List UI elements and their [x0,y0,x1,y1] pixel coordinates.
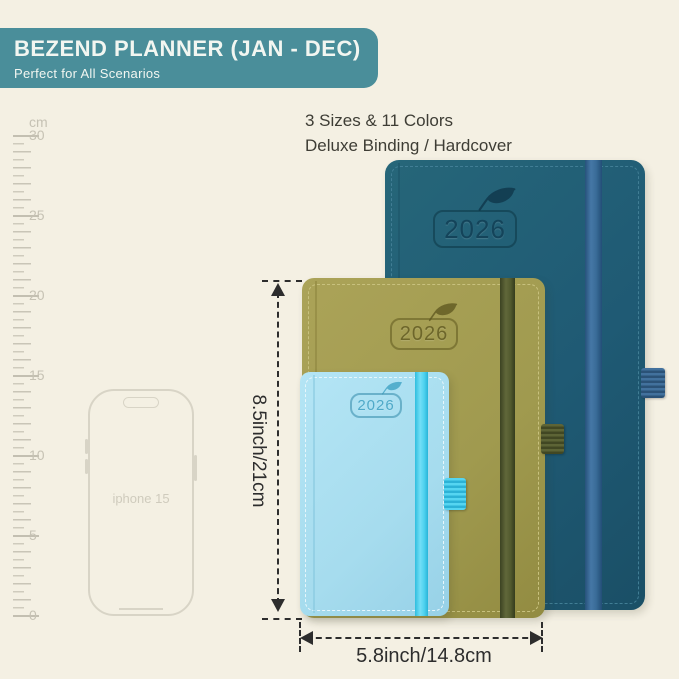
height-dimension-top-cap [262,280,302,282]
phone-label: iphone 15 [90,491,192,506]
year-embossed: 2026 [433,210,517,248]
height-dimension-line [277,292,279,604]
phone-port-line [119,608,163,610]
height-arrow-up-icon [271,283,285,296]
year-logo: 2026 [429,186,569,252]
height-dimension-label: 8.5inch/21cm [247,381,269,521]
phone-power-button [194,455,197,481]
width-dimension-line [306,637,538,639]
pen-loop [444,478,466,510]
feather-icon [477,186,517,212]
height-arrow-down-icon [271,599,285,612]
year-embossed: 2026 [350,393,402,418]
feature-binding: Deluxe Binding / Hardcover [305,133,512,158]
elastic-band [415,372,428,616]
ruler-label-10: 10 [29,447,55,463]
ruler-label-15: 15 [29,367,55,383]
width-arrow-right-icon [530,631,543,645]
feature-text: 3 Sizes & 11 Colors Deluxe Binding / Har… [305,108,512,158]
phone-volume-up-button [85,439,88,454]
phone-dynamic-island [123,397,159,408]
elastic-band [500,278,515,618]
cover-crease [313,375,315,613]
elastic-band [585,160,602,610]
pen-loop [641,368,665,398]
year-logo: 2026 [390,302,466,354]
banner-subtitle: Perfect for All Scenarios [14,66,378,81]
ruler-label-0: 0 [29,607,55,623]
product-image: BEZEND PLANNER (JAN - DEC) Perfect for A… [0,0,679,679]
product-banner: BEZEND PLANNER (JAN - DEC) Perfect for A… [0,28,378,88]
width-arrow-left-icon [300,631,313,645]
planner-small: 2026 [300,372,449,616]
phone-volume-down-button [85,459,88,474]
ruler-label-25: 25 [29,207,55,223]
pen-loop [541,424,564,454]
width-dimension-label: 5.8inch/14.8cm [306,645,542,668]
phone-outline: iphone 15 [88,389,194,616]
year-embossed: 2026 [390,318,458,350]
ruler-label-20: 20 [29,287,55,303]
ruler-label-30: 30 [29,127,55,143]
year-logo: 2026 [350,381,406,421]
height-dimension-bottom-cap [262,618,302,620]
ruler-label-5: 5 [29,527,55,543]
banner-title: BEZEND PLANNER (JAN - DEC) [14,36,378,62]
feature-sizes-colors: 3 Sizes & 11 Colors [305,108,512,133]
